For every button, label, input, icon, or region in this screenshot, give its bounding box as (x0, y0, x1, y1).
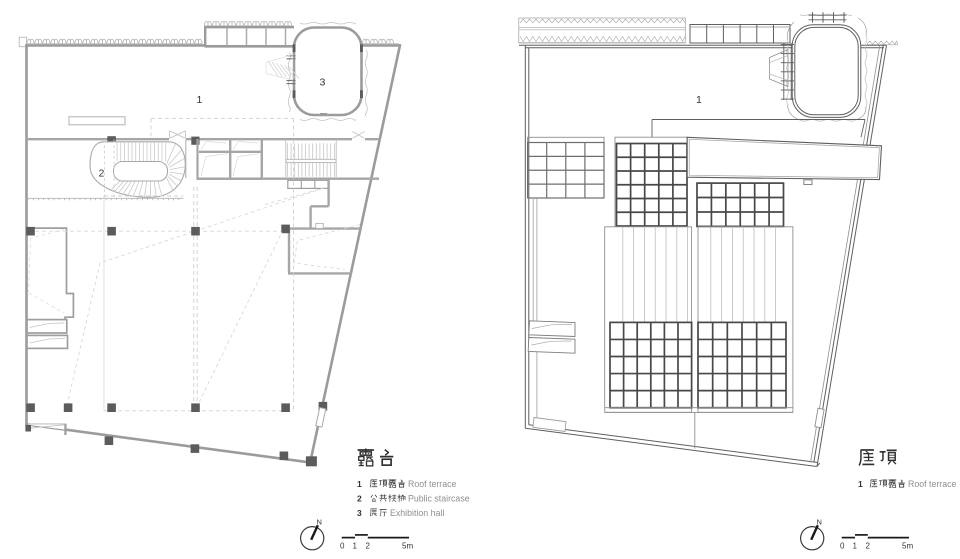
svg-text:N: N (817, 518, 822, 527)
svg-text:Public staircase: Public staircase (408, 494, 470, 504)
svg-text:Roof terrace: Roof terrace (908, 479, 957, 489)
svg-text:2: 2 (357, 494, 362, 504)
svg-text:Roof terrace: Roof terrace (408, 479, 457, 489)
svg-text:2: 2 (866, 542, 871, 551)
svg-text:1: 1 (853, 542, 858, 551)
svg-text:1: 1 (858, 479, 863, 489)
svg-text:1: 1 (357, 479, 362, 489)
svg-text:0: 0 (840, 542, 845, 551)
svg-text:2: 2 (366, 542, 371, 551)
svg-text:1: 1 (696, 94, 702, 106)
svg-text:3: 3 (357, 508, 362, 518)
svg-text:0: 0 (340, 542, 345, 551)
svg-text:3: 3 (320, 77, 326, 89)
svg-text:N: N (317, 518, 322, 527)
svg-text:Exhibition hall: Exhibition hall (390, 508, 444, 518)
svg-text:1: 1 (353, 542, 358, 551)
svg-text:5m: 5m (402, 542, 413, 551)
svg-text:1: 1 (197, 94, 203, 106)
svg-text:2: 2 (99, 168, 105, 180)
svg-text:5m: 5m (902, 542, 913, 551)
